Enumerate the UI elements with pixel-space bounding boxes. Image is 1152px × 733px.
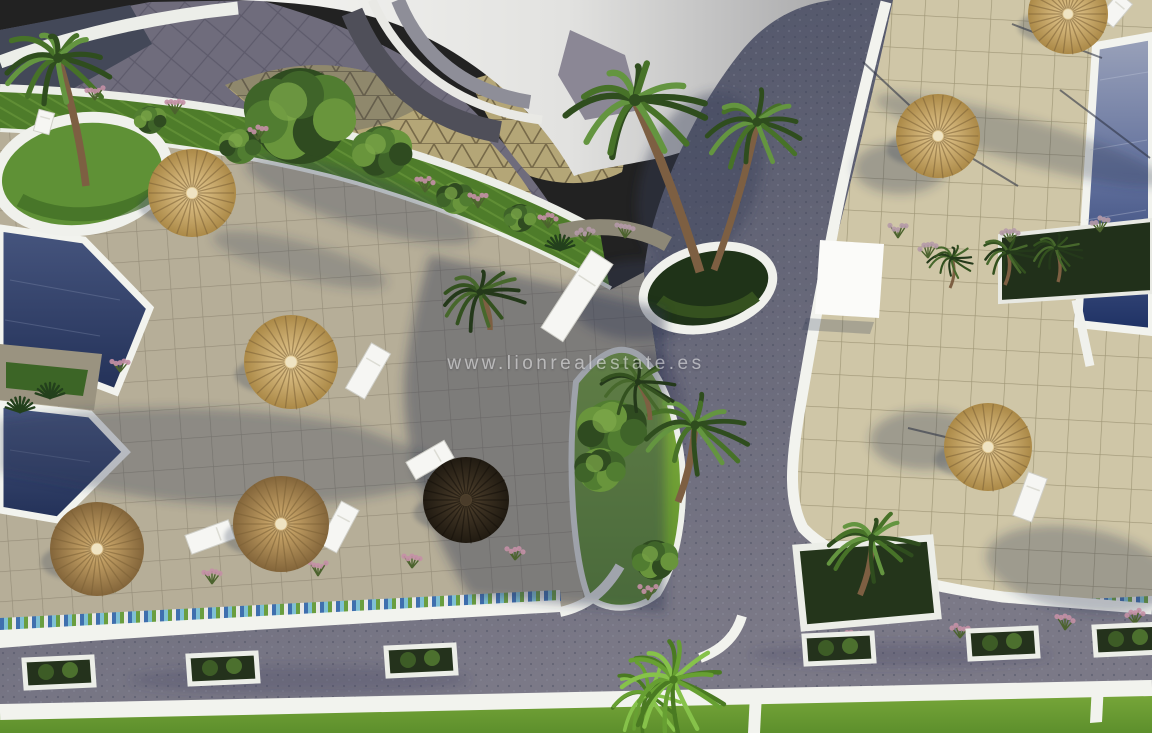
road-planter-box — [386, 645, 456, 676]
pool-planter-band — [1000, 220, 1152, 302]
road-planter-box — [1094, 624, 1152, 655]
road-planter-box — [188, 653, 258, 684]
pergola-roof — [815, 240, 884, 318]
road-planter-box — [804, 633, 874, 664]
lawn-divider-1 — [748, 693, 762, 733]
watermark-text: www.lionrealestate.es — [447, 353, 704, 375]
lawn-divider-2 — [1090, 683, 1104, 723]
resort-aerial-render: www.lionrealestate.es — [0, 0, 1152, 733]
road-planter-box — [24, 657, 94, 688]
road-planter-box — [968, 628, 1038, 659]
